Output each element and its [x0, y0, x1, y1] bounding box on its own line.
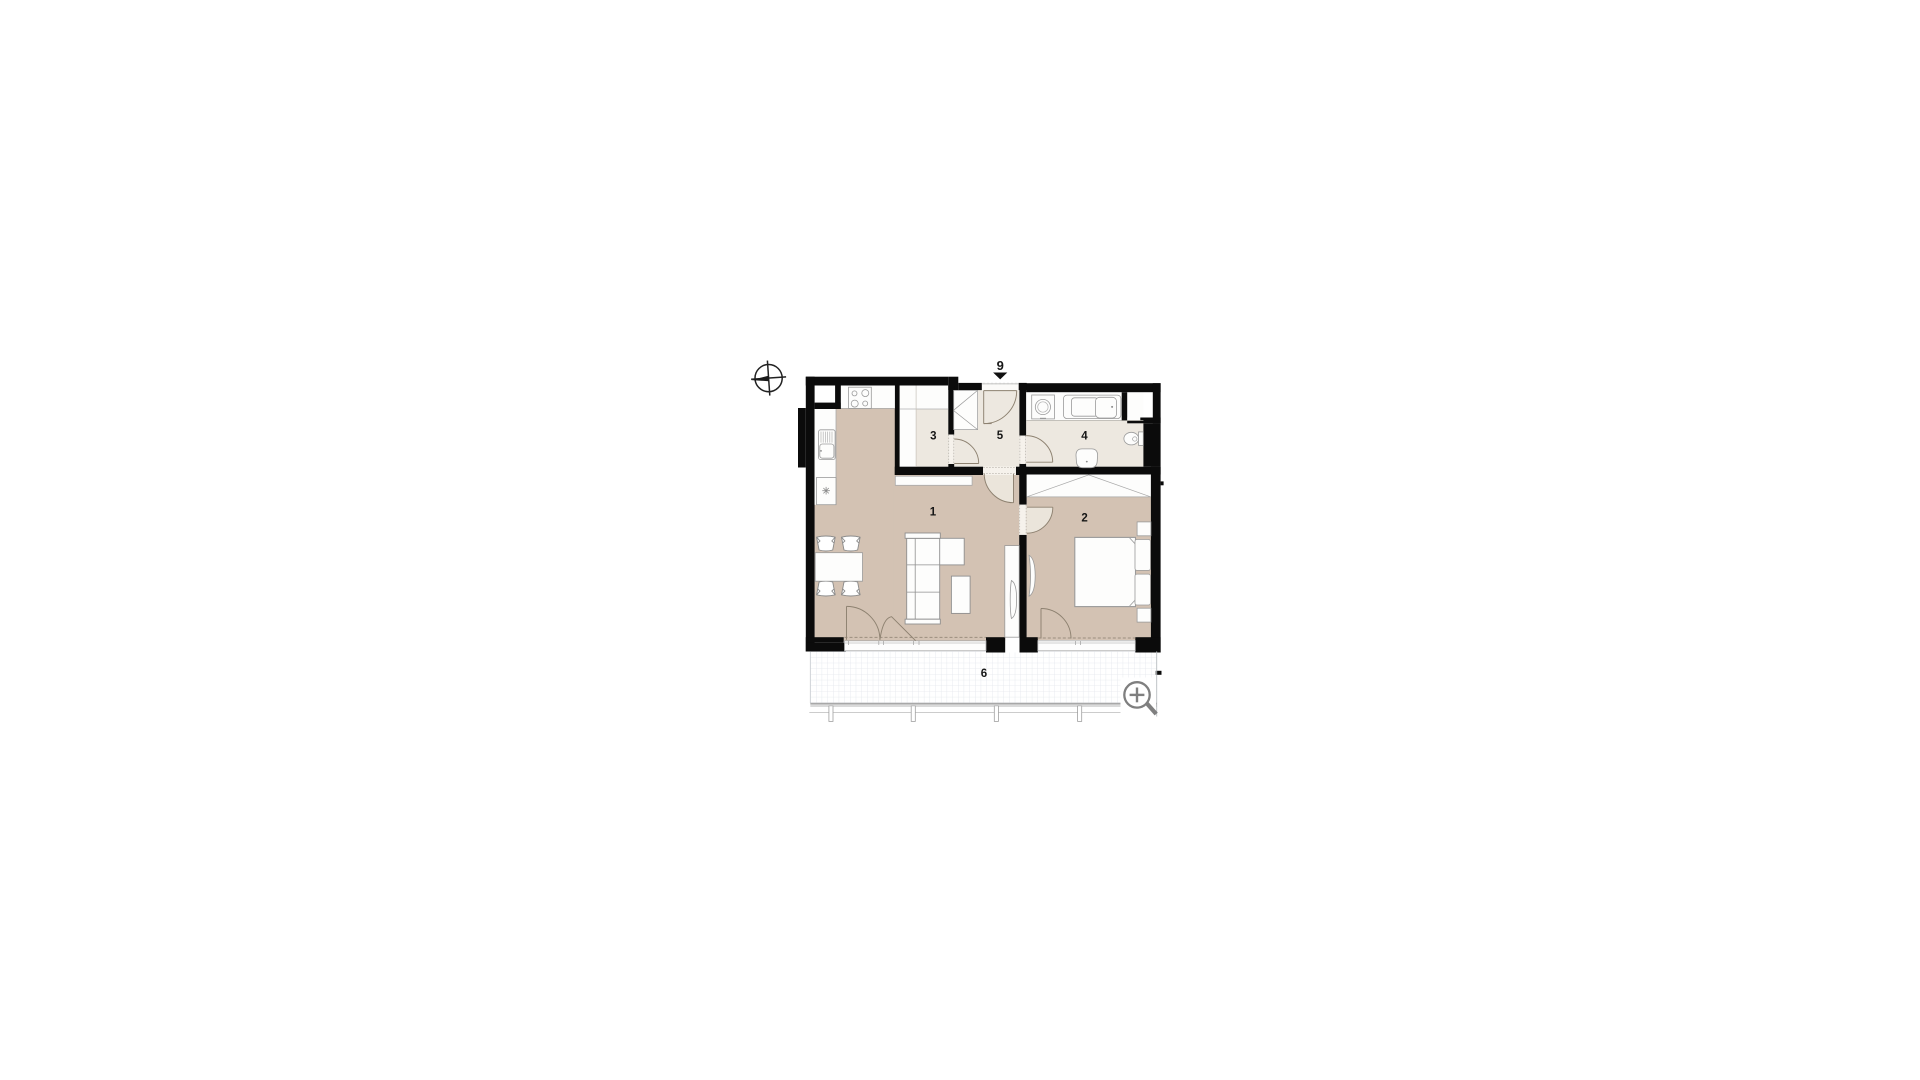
svg-text:1: 1: [930, 507, 937, 519]
svg-text:3: 3: [930, 431, 936, 443]
svg-text:2: 2: [1081, 513, 1087, 525]
svg-text:5: 5: [997, 430, 1004, 442]
svg-text:4: 4: [1081, 431, 1088, 443]
svg-text:6: 6: [981, 668, 987, 680]
svg-text:9: 9: [997, 358, 1004, 373]
